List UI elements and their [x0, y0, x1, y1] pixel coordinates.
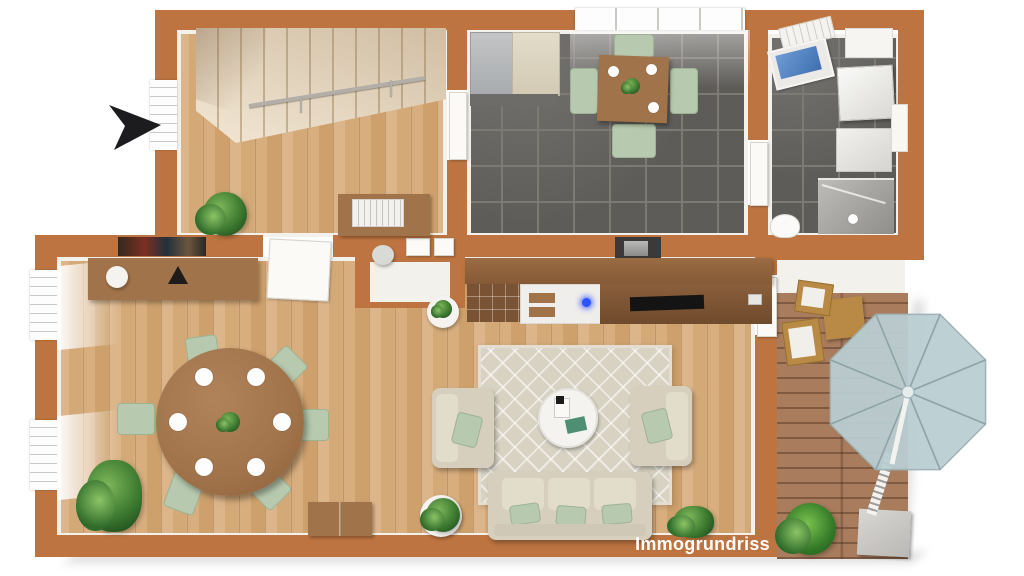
kitchen-chair-top — [614, 34, 654, 58]
side-table-plant — [434, 300, 452, 318]
coffee-table — [538, 388, 598, 448]
dining-window-1 — [30, 270, 57, 340]
bathroom-sink — [836, 128, 892, 172]
wall-hall-left-lower — [155, 150, 177, 240]
kitchen-plate-1 — [608, 66, 619, 77]
media-wall-top — [465, 258, 772, 284]
north-arrow-icon — [106, 92, 164, 152]
dining-plate-4 — [169, 413, 187, 431]
wall-living-right-lower — [755, 335, 777, 557]
living-plant-left — [426, 498, 460, 532]
shower-enclosure — [818, 178, 894, 234]
media-console — [600, 284, 772, 324]
wall-kitchen-bath-upper — [748, 28, 768, 140]
kitchen-bath-door — [750, 142, 768, 206]
wall-hall-left-upper — [155, 10, 177, 80]
kitchen-window — [575, 8, 745, 30]
kitchen-plate-3 — [648, 102, 659, 113]
kitchen-counter — [470, 94, 558, 106]
shower-tray-water — [775, 46, 822, 79]
umbrella-base — [857, 509, 911, 558]
kitchen-table-plant — [624, 78, 640, 94]
sofa — [488, 472, 652, 540]
dining-plate-2 — [247, 458, 265, 476]
shower-drain — [848, 214, 858, 224]
dining-table-plant — [220, 412, 240, 432]
bathroom-shelf — [845, 28, 893, 58]
wall-picture — [118, 237, 206, 256]
wall-hall-kitchen-lower — [447, 160, 467, 240]
dining-chair-6 — [117, 403, 155, 435]
tv — [630, 295, 704, 312]
wall-dining-left-2 — [35, 340, 57, 420]
hall-kitchen-door — [449, 92, 467, 160]
media-drawer-2 — [529, 307, 555, 317]
dining-window-2 — [30, 420, 57, 490]
media-drawer-1 — [529, 293, 555, 303]
dining-sideboard — [88, 258, 258, 300]
kitchen-tall-cabinet — [512, 32, 560, 96]
dining-plant — [86, 460, 142, 532]
decor-lamp — [168, 266, 188, 284]
washing-machine — [837, 65, 896, 122]
kitchen-chair-bottom — [612, 124, 656, 158]
dining-plate-1 — [273, 413, 291, 431]
floor-plan-render: Immogrundriss — [0, 0, 1024, 576]
parasol-umbrella — [818, 302, 998, 482]
armchair-left — [432, 388, 494, 468]
kitchen-chair-right — [670, 68, 698, 114]
hallway-plant — [203, 192, 247, 236]
wall-dining-left-1 — [35, 235, 57, 270]
dining-plate-3 — [195, 458, 213, 476]
kitchen-plate-2 — [646, 64, 657, 75]
oven — [624, 241, 648, 256]
handrail-baluster-1 — [300, 96, 302, 112]
terrace-plant — [784, 503, 836, 555]
wc-door-threshold-1 — [406, 238, 430, 256]
wc-round-basin — [372, 245, 394, 265]
sofa-pillow-3 — [601, 503, 633, 526]
decor-bowl — [106, 266, 128, 288]
dining-plate-6 — [247, 368, 265, 386]
bathroom-wall-cabinet — [891, 104, 908, 152]
wc-door-threshold-2 — [434, 238, 454, 256]
watermark-label: Immogrundriss — [558, 534, 770, 557]
wall-hall-kitchen-upper — [447, 28, 467, 90]
media-shelf-cubbies — [467, 284, 520, 322]
handrail-baluster-2 — [390, 80, 392, 96]
coffee-table-green-book — [565, 416, 587, 434]
coffee-table-black-item — [556, 396, 564, 404]
wall-bath-bottom — [755, 235, 924, 260]
hall-living-door-open — [266, 238, 331, 301]
dining-plate-5 — [195, 368, 213, 386]
terrace-chair-1-cushion — [788, 326, 816, 359]
kitchen-chair-left — [570, 68, 598, 114]
shower-glass-line — [822, 184, 886, 204]
fridge — [470, 32, 514, 96]
sofa-pillow-1 — [509, 502, 541, 526]
toilet — [770, 214, 800, 238]
hallway-radiator — [352, 199, 404, 227]
console-decor — [748, 294, 762, 305]
dining-low-cabinet — [308, 502, 372, 536]
armchair-right — [630, 386, 692, 466]
console-blue-light — [582, 298, 591, 307]
